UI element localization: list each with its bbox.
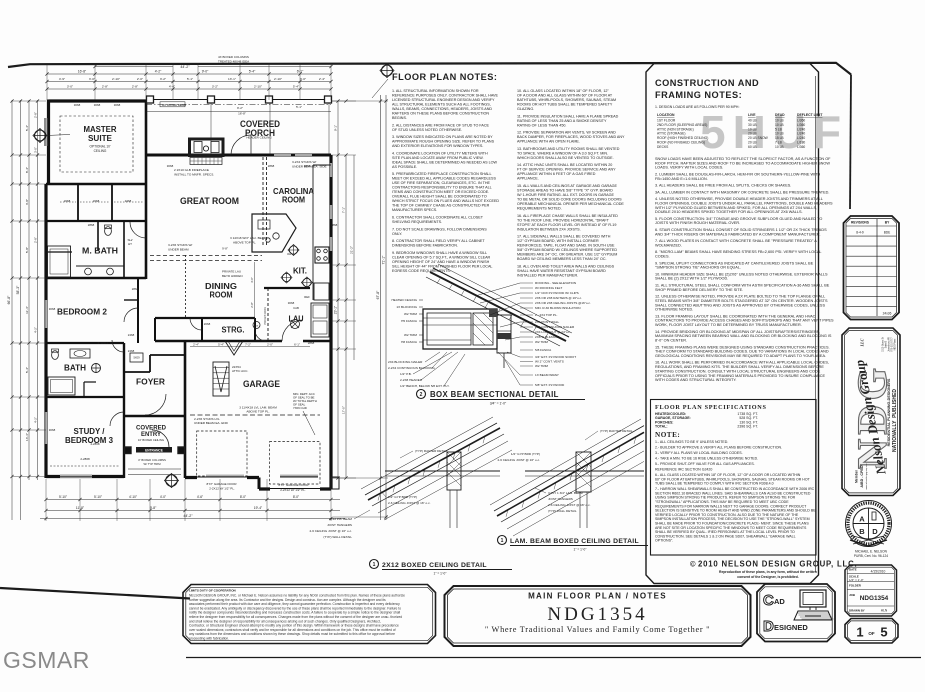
- svg-text:3068: 3068: [94, 103, 101, 107]
- svg-text:2-2868: 2-2868: [80, 457, 90, 461]
- svg-text:4'-2": 4'-2": [33, 327, 37, 333]
- svg-text:SHALL BE (2) 2X12 WITH 1/2" PL: SHALL BE (2) 2X12 WITH 1/2" PLYWOOD.: [655, 277, 728, 281]
- svg-text:9'-0": 9'-0": [202, 70, 209, 74]
- svg-text:ENTRANCE: ENTRANCE: [145, 449, 163, 453]
- svg-text:30 LB: 30 LB: [748, 123, 757, 127]
- svg-text:7'-1": 7'-1": [342, 207, 346, 213]
- svg-text:8'-0": 8'-0": [293, 495, 299, 499]
- svg-text:W/ 1-HOUR FIRE RATING. ALL EXT: W/ 1-HOUR FIRE RATING. ALL EXT. DOORS IN…: [517, 193, 614, 197]
- svg-text:15 LB: 15 LB: [775, 136, 784, 140]
- svg-text:3068: 3068: [74, 103, 81, 107]
- svg-text:1: 1: [373, 562, 376, 568]
- svg-text:OPERABLE MECHANICAL OPENER PER: OPERABLE MECHANICAL OPENER PER MECHANICA…: [517, 202, 624, 206]
- svg-text:GEOLOGICAL CONDITIONS REVISION: GEOLOGICAL CONDITIONS REVISIONS MAY BE R…: [655, 354, 826, 358]
- svg-text:3A. ALL LUMBER IN CONTACT WITH: 3A. ALL LUMBER IN CONTACT WITH MASONRY O…: [655, 190, 829, 194]
- svg-text:BEDROOM 3: BEDROOM 3: [65, 436, 114, 445]
- svg-text:BEGINS.: BEGINS.: [392, 116, 407, 120]
- svg-text:FOLDER: FOLDER: [849, 584, 862, 588]
- svg-text:2-2X4 CONTINUOUS BLOCKING: 2-2X4 CONTINUOUS BLOCKING: [388, 366, 435, 370]
- svg-text:9'-2": 9'-2": [237, 106, 243, 110]
- svg-text:9. BEDROOM WINDOWS SHALL HAVE: 9. BEDROOM WINDOWS SHALL HAVE A WINDOW S…: [392, 251, 487, 255]
- svg-text:BOX BEAM SECTIONAL DETAIL: BOX BEAM SECTIONAL DETAIL: [430, 390, 559, 399]
- svg-text:consent of the Designer, is pr: consent of the Designer, is prohibited.: [737, 575, 799, 579]
- svg-text:BATHTUBS, WHIRLPOOLS, SHOWERS,: BATHTUBS, WHIRLPOOLS, SHOWERS, SAUNAS, S…: [517, 98, 616, 102]
- svg-text:2X6 OR 2X8 CEILING JOISTS @16": 2X6 OR 2X8 CEILING JOISTS @16"o.c.: [535, 301, 591, 305]
- svg-text:13'-1": 13'-1": [228, 77, 236, 81]
- svg-text:STRG.: STRG.: [222, 326, 245, 335]
- svg-text:16'-8": 16'-8": [238, 112, 246, 116]
- svg-text:BOARD W/ CEILING MEMBERS LESS: BOARD W/ CEILING MEMBERS LESS THAN 24" O…: [517, 257, 607, 261]
- svg-text:"SIMPSON STRONG TIE" ANCHORS O: "SIMPSON STRONG TIE" ANCHORS OR EQUAL.: [655, 266, 741, 270]
- svg-text:3 14X18 W/3" LAU. BEAM: 3 14X18 W/3" LAU. BEAM: [230, 236, 267, 240]
- svg-text:3068: 3068: [49, 307, 56, 311]
- svg-text:3468: 3468: [125, 199, 132, 203]
- svg-text:4'-0": 4'-0": [160, 495, 166, 499]
- svg-text:LLC: LLC: [860, 338, 865, 347]
- svg-text:C: C: [763, 592, 774, 609]
- svg-text:DEFLECT LIMIT: DEFLECT LIMIT: [797, 113, 823, 117]
- svg-text:17. ALL SIDEWALL WALLS SHALL B: 17. ALL SIDEWALL WALLS SHALL BE COVERED …: [517, 235, 611, 239]
- svg-text:23'-1": 23'-1": [334, 305, 338, 314]
- svg-text:W/ ROOFING FELT: W/ ROOFING FELT: [535, 286, 562, 290]
- svg-text:(TYP) WALL DETAIL: (TYP) WALL DETAIL: [323, 535, 352, 539]
- svg-text:2-6 CEILING JOIST @ 16" o.c.: 2-6 CEILING JOIST @ 16" o.c.: [388, 501, 431, 505]
- svg-text:2X4 BLOCKING NAILER: 2X4 BLOCKING NAILER: [388, 360, 423, 364]
- svg-text:ATTIC ACC.: ATTIC ACC.: [232, 369, 248, 373]
- svg-text:4'-10": 4'-10": [129, 495, 137, 499]
- svg-text:HT: HT: [128, 242, 132, 246]
- svg-text:ONLY.: ONLY.: [392, 232, 402, 236]
- svg-text:44'-2": 44'-2": [180, 65, 190, 69]
- svg-text:4.- TAKE A MIN. TO BE 16 RISE: 4.- TAKE A MIN. TO BE 16 RISE UNLESS OTH…: [655, 457, 758, 461]
- svg-text:7. DO NOT SCALE DRAWINGS, FOLL: 7. DO NOT SCALE DRAWINGS, FOLLOW DIMENSI…: [392, 227, 487, 231]
- svg-text:MEMBERS ARE 24" OC. OR GREATER: MEMBERS ARE 24" OC. OR GREATER. USE 1/2"…: [517, 253, 617, 257]
- svg-text:HEATED CEILING: HEATED CEILING: [391, 298, 417, 302]
- svg-text:OPTIONAL 10': OPTIONAL 10': [89, 145, 110, 149]
- svg-text:D: D: [872, 527, 878, 536]
- svg-text:REFERENCE IRC SECTION G2420: REFERENCE IRC SECTION G2420: [655, 468, 712, 472]
- svg-text:LOADS. VERIFY WITH LOCAL CODES: LOADS. VERIFY WITH LOCAL CODES.: [655, 166, 723, 170]
- svg-text:5 LB: 5 LB: [775, 127, 783, 131]
- svg-text:2. ALL DISTANCES ARE FROM FACE: 2. ALL DISTANCES ARE FROM FACE OF STUD T…: [392, 123, 490, 127]
- svg-text:5X09: 5X09: [133, 356, 140, 360]
- svg-text:FLOOR PLAN SPECIFICATIONS: FLOOR PLAN SPECIFICATIONS: [655, 404, 767, 411]
- svg-text:60 LB: 60 LB: [748, 145, 757, 149]
- svg-text:CAB: CAB: [293, 306, 299, 310]
- svg-text:TO SPACE. WHERE A WINDOW OF A: TO SPACE. WHERE A WINDOW OF A 3.0 SQ.FT.…: [517, 151, 608, 155]
- svg-text:4'-6": 4'-6": [197, 495, 203, 499]
- svg-text:NDG1354: NDG1354: [860, 595, 889, 602]
- svg-text:NDG1354: NDG1354: [547, 604, 647, 625]
- svg-text:GARAGE: GARAGE: [243, 379, 280, 389]
- svg-text:ITEMS AND CONSTRUCTION MEET OR: ITEMS AND CONSTRUCTION MEET OR EXCEED CO…: [392, 190, 489, 194]
- svg-text:WALLS, BEAMS, CONNECTIONS, HEA: WALLS, BEAMS, CONNECTIONS, HEADERS, JOIS…: [392, 107, 492, 111]
- svg-text:2-2X12 W/ 1/2" PL.: 2-2X12 W/ 1/2" PL.: [209, 487, 235, 491]
- svg-text:5'-8": 5'-8": [25, 247, 29, 253]
- svg-text:3'-0": 3'-0": [250, 277, 254, 283]
- svg-text:3. WINDOW SIZES INDICATED ON P: 3. WINDOW SIZES INDICATED ON PLANS ARE N…: [392, 135, 493, 139]
- svg-text:8-4-9: 8-4-9: [856, 231, 864, 235]
- svg-text:5/8" GYPSUM BOARD W/ CEILINGS: 5/8" GYPSUM BOARD W/ CEILINGS WHERE SUPP…: [517, 248, 617, 252]
- svg-text:10 LB: 10 LB: [775, 123, 784, 127]
- svg-text:6' WALL: 6' WALL: [98, 341, 109, 345]
- svg-text:BEYD HIDDEN: BEYD HIDDEN: [222, 274, 243, 278]
- svg-text:9'-1": 9'-1": [334, 125, 338, 131]
- svg-text:JOIST HANGERS: JOIST HANGERS: [548, 497, 573, 501]
- svg-text:WORK, FLOOR JOIST LAYOUT TO BE: WORK, FLOOR JOIST LAYOUT TO BE DETERMINE…: [655, 323, 802, 327]
- svg-text:OPENING HEIGHT OF 24" AND HAVE: OPENING HEIGHT OF 24" AND HAVE A WINDOW …: [392, 260, 490, 264]
- svg-text:2868: 2868: [308, 341, 315, 345]
- svg-text:TREATED 48X48 IDEA: TREATED 48X48 IDEA: [218, 60, 249, 64]
- svg-text:TO BE METAL OR SOLID CORE DOOR: TO BE METAL OR SOLID CORE DOORS INCLUDIN…: [517, 198, 622, 202]
- svg-text:12. PROVIDE SEPARATION AIR VEN: 12. PROVIDE SEPARATION AIR VENTS, W/ SCR…: [517, 131, 616, 135]
- svg-text:WITH CODES AND STRUCTURAL INTE: WITH CODES AND STRUCTURAL INTEGRITY.: [655, 378, 736, 382]
- svg-text:H5 FASCIA: H5 FASCIA: [401, 319, 418, 323]
- svg-text:CODES.: CODES.: [655, 255, 670, 259]
- svg-text:3-2X6 STUDS W/: 3-2X6 STUDS W/: [168, 243, 192, 247]
- svg-text:ABOVE TOP PL.: ABOVE TOP PL.: [246, 410, 269, 414]
- svg-text:DOUBLE 2X10 HEADERS SPIKED TOG: DOUBLE 2X10 HEADERS SPIKED TOGETHER FOR …: [655, 210, 803, 214]
- svg-text:2-6 CEILING JOIST @ 16" o.c.: 2-6 CEILING JOIST @ 16" o.c.: [548, 503, 591, 507]
- svg-text:3'-0": 3'-0": [89, 77, 95, 81]
- svg-text:2'-4": 2'-4": [319, 77, 325, 81]
- svg-text:16. ALL FIREPLACE CHASE WALLS: 16. ALL FIREPLACE CHASE WALLS SHALL BE I…: [517, 214, 618, 218]
- svg-text:WHICH STRICT FOCUS ON FLUES AN: WHICH STRICT FOCUS ON FLUES AND WALLS NO…: [392, 199, 499, 203]
- svg-text:WHICH DOORS SHALL ALSO BE VENT: WHICH DOORS SHALL ALSO BE VENTED TO OUTS…: [517, 156, 614, 160]
- svg-text:Reproduction of these plans, i: Reproduction of these plans, in any form…: [719, 570, 817, 574]
- svg-text:13. BATHROOMS AND UTILITY ROOM: 13. BATHROOMS AND UTILITY ROOMS SHALL BE…: [517, 147, 620, 151]
- svg-text:2'-10": 2'-10": [254, 85, 262, 89]
- svg-text:17'-0": 17'-0": [342, 406, 346, 414]
- svg-text:INSTALL TO MNFR. SPECS.: INSTALL TO MNFR. SPECS.: [174, 173, 214, 177]
- svg-text:L/360: L/360: [797, 119, 805, 123]
- svg-text:2X4 CONTINUOUS NAILER: 2X4 CONTINUOUS NAILER: [535, 325, 575, 329]
- svg-text:1: 1: [501, 538, 504, 544]
- svg-text:8'X7' GARAGE DOOR: 8'X7' GARAGE DOOR: [279, 483, 310, 487]
- svg-text:SHALL HAVE WATER RESISTANT GYP: SHALL HAVE WATER RESISTANT GYPSUM BOARD: [517, 269, 606, 273]
- svg-text:W2 TRIM: W2 TRIM: [535, 364, 548, 368]
- svg-text:BDE: BDE: [884, 231, 891, 235]
- svg-text:1. DESIGN LOADS ARE AS FOLLOWS: 1. DESIGN LOADS ARE AS FOLLOWS PER 90 MP…: [655, 105, 739, 109]
- svg-text:W2 TRIM: W2 TRIM: [404, 312, 417, 316]
- svg-text:1ST FLOOR: 1ST FLOOR: [657, 119, 676, 123]
- svg-text:870-931-5777: 870-931-5777: [892, 337, 894, 352]
- svg-text:5'-10": 5'-10": [59, 495, 67, 499]
- svg-text:Member: Member: [855, 469, 859, 483]
- svg-text:20 LB SNOW: 20 LB SNOW: [748, 136, 769, 140]
- svg-text:APPLIANCE WITHIN 6 FEET OF A G: APPLIANCE WITHIN 6 FEET OF A GAS FIRED: [517, 172, 596, 176]
- svg-text:proceeding with fabrication.: proceeding with fabrication.: [189, 637, 229, 641]
- svg-text:4/15/2010: 4/15/2010: [871, 570, 886, 574]
- svg-text:5. PREFABRICATED FIREPLACE CON: 5. PREFABRICATED FIREPLACE CONSTRUCTION …: [392, 172, 492, 176]
- svg-text:2468: 2468: [128, 349, 135, 353]
- svg-text:RESIDENTIAL PLANNING-DESIGNERS: RESIDENTIAL PLANNING-DESIGNERS: [887, 378, 891, 446]
- svg-text:7 LB: 7 LB: [775, 141, 783, 145]
- svg-text:1: 1: [856, 625, 863, 640]
- svg-text:OPTIONS".: OPTIONS".: [655, 539, 673, 543]
- svg-text:10 LB: 10 LB: [775, 132, 784, 136]
- svg-text:2'-8": 2'-8": [250, 302, 254, 308]
- svg-text:8'-0" ON CENTER.: 8'-0" ON CENTER.: [655, 339, 687, 343]
- svg-text:3.- VERIFY ALL PLANS W/ LOCAL: 3.- VERIFY ALL PLANS W/ LOCAL BUILDING C…: [655, 451, 743, 455]
- svg-text:WS: WS: [255, 326, 259, 328]
- svg-text:1" = 1'-0": 1" = 1'-0": [574, 548, 587, 552]
- svg-text:REQUIREMENTS NOTED.: REQUIREMENTS NOTED.: [517, 207, 562, 211]
- svg-text:NOTE:: NOTE:: [655, 431, 680, 439]
- svg-text:BY: BY: [885, 221, 890, 225]
- svg-text:L/240: L/240: [797, 132, 805, 136]
- svg-text:2'-0": 2'-0": [267, 342, 273, 346]
- svg-text:8'X7' GARAGE DOOR: 8'X7' GARAGE DOOR: [207, 482, 238, 486]
- svg-text:ROOF (NO FINISHED CEILING): ROOF (NO FINISHED CEILING): [657, 141, 705, 145]
- svg-text:APPROXIMATE ROUGH OPENING SIZE: APPROXIMATE ROUGH OPENING SIZE. REFER TO…: [392, 140, 495, 144]
- svg-text:2868: 2868: [304, 164, 311, 168]
- svg-text:HEADER CEILING: HEADER CEILING: [246, 136, 272, 140]
- svg-text:8. CONTRACTOR SHALL FIELD VERI: 8. CONTRACTOR SHALL FIELD VERIFY ALL CAB…: [392, 239, 485, 243]
- svg-text:DEAD: DEAD: [775, 113, 785, 117]
- svg-text:2'-8": 2'-8": [132, 85, 138, 89]
- svg-text:1/2" GYPSUM BOARD, WITH INSTAL: 1/2" GYPSUM BOARD, WITH INSTALL CORNER: [517, 239, 599, 243]
- svg-text:5/8 FASCIA: 5/8 FASCIA: [535, 348, 552, 352]
- svg-text:W/ TYP TRIM: W/ TYP TRIM: [143, 462, 161, 466]
- svg-text:ABOVE TOP PL.: ABOVE TOP PL.: [233, 241, 256, 245]
- svg-text:CEILING: CEILING: [94, 149, 107, 153]
- svg-text:2868: 2868: [88, 223, 95, 227]
- svg-text:CLEAR OPENING OF 5.7 SQ.FT., A: CLEAR OPENING OF 5.7 SQ.FT., A WINDOW SI…: [392, 255, 491, 259]
- svg-text:WOLMANIZED.: WOLMANIZED.: [655, 243, 682, 247]
- svg-text:LAU: LAU: [289, 315, 304, 324]
- svg-text:2868: 2868: [132, 287, 139, 291]
- svg-text:4'-2": 4'-2": [155, 70, 162, 74]
- svg-text:TUBS SHALL BE TEMPERED TO COMP: TUBS SHALL BE TEMPERED TO COMPLY WITH IR…: [655, 482, 774, 486]
- svg-text:3068: 3068: [49, 428, 56, 432]
- svg-text:2-2X8 HEADER: 2-2X8 HEADER: [400, 378, 423, 382]
- svg-text:DRAWN BY: DRAWN BY: [849, 609, 865, 613]
- svg-text:1/2" P.B.: 1/2" P.B.: [400, 372, 412, 376]
- svg-text:RATING OF LESS THAN 450.: RATING OF LESS THAN 450.: [517, 123, 566, 127]
- svg-text:APPLIANCE.: APPLIANCE.: [517, 177, 539, 181]
- svg-text:A: A: [859, 515, 865, 524]
- svg-text:NATIONALLY PUBLISHED: NATIONALLY PUBLISHED: [892, 389, 898, 452]
- svg-text:1/4" = 1'-0": 1/4" = 1'-0": [849, 578, 864, 582]
- svg-text:2-2X12 W/ 1/2" PL.: 2-2X12 W/ 1/2" PL.: [280, 488, 306, 492]
- svg-text:HLN: HLN: [881, 609, 888, 613]
- svg-text:PRIVATE LAU: PRIVATE LAU: [222, 270, 241, 274]
- svg-text:3'-2": 3'-2": [160, 77, 166, 81]
- svg-text:67'-8": 67'-8": [376, 290, 380, 299]
- svg-text:L/360: L/360: [797, 145, 805, 149]
- svg-text:©: ©: [690, 560, 696, 569]
- svg-text:21'-2": 21'-2": [350, 246, 354, 254]
- svg-text:2'-10": 2'-10": [274, 77, 282, 81]
- svg-text:20 LB: 20 LB: [748, 132, 757, 136]
- svg-text:2 2X10 GLB FIREPLACE: 2 2X10 GLB FIREPLACE: [174, 168, 209, 172]
- svg-text:B: B: [859, 527, 865, 536]
- svg-text:OVERALL FLUE HEIGHT SHALL BE C: OVERALL FLUE HEIGHT SHALL BE COORDINATED…: [392, 195, 487, 199]
- svg-text:AS POSSIBLE.: AS POSSIBLE.: [392, 165, 417, 169]
- svg-text:2.- BUILDER TO APPROVE & VERIF: 2.- BUILDER TO APPROVE & VERIFY ALL PLAN…: [655, 446, 782, 450]
- svg-text:MASTER: MASTER: [84, 125, 117, 134]
- svg-text:ROOM: ROOM: [282, 195, 305, 205]
- svg-text:OF: OF: [868, 631, 875, 636]
- svg-text:GREAT ROOM: GREAT ROOM: [180, 196, 239, 206]
- svg-text:2-6 CEILING JOIST @ 16" o.c.: 2-6 CEILING JOIST @ 16" o.c.: [497, 458, 540, 462]
- svg-text:MAIN FLOOR PLAN / NOTES: MAIN FLOOR PLAN / NOTES: [528, 592, 667, 601]
- svg-text:11. PROVIDE INSULATION SHALL H: 11. PROVIDE INSULATION SHALL HAVE A FLAM…: [517, 114, 619, 118]
- svg-text:1. ALL STRUCTURAL INFORMATION: 1. ALL STRUCTURAL INFORMATION SHOWN FOR: [392, 89, 479, 93]
- svg-text:www.nelsondesigngroup.com: www.nelsondesigngroup.com: [866, 463, 868, 489]
- svg-text:2X12 BOXED CEILING DETAIL: 2X12 BOXED CEILING DETAIL: [382, 562, 487, 569]
- svg-text:OH.: OH.: [287, 252, 292, 256]
- svg-text:1/2" CDX PLYWOOD W/ CLIPS: 1/2" CDX PLYWOOD W/ CLIPS: [535, 291, 579, 295]
- svg-text:2396 SQ. FT.: 2396 SQ. FT.: [737, 425, 758, 429]
- svg-text:5'-4": 5'-4": [293, 85, 299, 89]
- svg-text:3/4" EXT. PLYWOOD SOFFIT: 3/4" EXT. PLYWOOD SOFFIT: [535, 355, 576, 359]
- svg-text:5: 5: [880, 625, 887, 640]
- svg-text:POCKET DOOR: POCKET DOOR: [264, 307, 267, 325]
- svg-text:OTHERWISE NOTED.: OTHERWISE NOTED.: [655, 308, 693, 312]
- svg-text:5'-4": 5'-4": [218, 342, 224, 346]
- svg-text:5'-4": 5'-4": [25, 125, 29, 131]
- svg-text:RAFTERS ON THESE PLANS BEFORE: RAFTERS ON THESE PLANS BEFORE CONSTRUCTI…: [392, 112, 489, 116]
- svg-text:D: D: [763, 618, 774, 635]
- svg-text:2'-10": 2'-10": [112, 77, 120, 81]
- svg-text:10 LB: 10 LB: [775, 119, 784, 123]
- svg-text:24x36: 24x36: [883, 312, 892, 316]
- svg-text:1/2" GYP BRD (TYP): 1/2" GYP BRD (TYP): [511, 452, 540, 456]
- svg-text:ALL STRUCTURAL ELEMENTS SUCH A: ALL STRUCTURAL ELEMENTS SUCH AS ALL FOOT…: [392, 103, 491, 107]
- svg-text:3'-8": 3'-8": [25, 199, 29, 205]
- svg-text:18. ALL OVEN AND TOILET AREA W: 18. ALL OVEN AND TOILET AREA WALLS AND C…: [517, 264, 615, 268]
- svg-text:MEET OR EXCEED ALL APPLICABLE: MEET OR EXCEED ALL APPLICABLE CODES REGA…: [392, 177, 496, 181]
- svg-text:UNDER BEAM EA. END: UNDER BEAM EA. END: [194, 421, 229, 425]
- svg-text:2068: 2068: [204, 322, 211, 326]
- svg-text:ROOM: ROOM: [210, 290, 233, 300]
- svg-text:REVISIONS: REVISIONS: [851, 221, 870, 225]
- svg-text:JOISTS WITH FINISH ROUGH MATER: JOISTS WITH FINISH ROUGH MATERIAL OVER.: [655, 221, 740, 225]
- svg-text:DIMENSIONS BEFORE FABRICATION.: DIMENSIONS BEFORE FABRICATION.: [392, 244, 458, 248]
- svg-text:RATING OF LESS THAN 25 AND A S: RATING OF LESS THAN 25 AND A SMOKE DENSI…: [517, 119, 607, 123]
- svg-text:SHELVING REQUIREMENTS.: SHELVING REQUIREMENTS.: [392, 220, 442, 224]
- svg-text:MICHAEL E. NELSON: MICHAEL E. NELSON: [855, 550, 888, 554]
- svg-text:STOPS" AT EACH FLOOR LEVEL OR: STOPS" AT EACH FLOOR LEVEL OR INSTEAD 8"…: [517, 223, 616, 227]
- svg-text:M. BATH: M. BATH: [82, 246, 118, 256]
- svg-text:2ND FLOOR (SLEEPING AREAS): 2ND FLOOR (SLEEPING AREAS): [657, 123, 707, 127]
- svg-text:2 - 2X4 TOP PL.: 2 - 2X4 TOP PL.: [535, 313, 558, 317]
- svg-text:3068: 3068: [167, 164, 174, 168]
- svg-text:2'-4": 2'-4": [193, 342, 199, 346]
- svg-text:JOB: JOB: [849, 593, 855, 597]
- svg-text:SITE PLAN AND LOCATE AWAY FROM: SITE PLAN AND LOCATE AWAY FROM PUBLIC VI…: [392, 156, 484, 160]
- svg-text:ATTIC (STORAGE): ATTIC (STORAGE): [657, 132, 685, 136]
- svg-text:2068: 2068: [93, 199, 100, 203]
- svg-text:2X4 PONY WALL: 2X4 PONY WALL: [535, 320, 560, 324]
- svg-text:19'-4": 19'-4": [254, 506, 263, 510]
- svg-text:2868: 2868: [331, 223, 338, 227]
- svg-text:7X09 CHD: 7X09 CHD: [293, 406, 307, 410]
- svg-text:STUDY /: STUDY /: [74, 427, 106, 436]
- svg-text:2010 NELSON DESIGN GROUP, LLC.: 2010 NELSON DESIGN GROUP, LLC.: [698, 560, 857, 569]
- svg-text:2'-8": 2'-8": [102, 85, 108, 89]
- svg-text:2868: 2868: [268, 164, 275, 168]
- svg-text:8'-4": 8'-4": [25, 167, 29, 173]
- svg-text:10 LB: 10 LB: [775, 145, 784, 149]
- svg-text:JOIST HANGERS: JOIST HANGERS: [327, 523, 352, 527]
- svg-text:TO THE ROOF LINE. PROVIDE HORI: TO THE ROOF LINE. PROVIDE HORIZONTAL "DR…: [517, 218, 610, 222]
- svg-text:2X12 P.B. BEAM: 2X12 P.B. BEAM: [329, 517, 353, 521]
- svg-text:2068: 2068: [64, 199, 71, 203]
- svg-text:2'-8": 2'-8": [33, 112, 37, 118]
- svg-text:BEDROOM 2: BEDROOM 2: [57, 307, 107, 317]
- svg-text:W2 TRIM: W2 TRIM: [404, 333, 417, 337]
- svg-text:8. "MICRO-LAM" BEAMS SHALL HAV: 8. "MICRO-LAM" BEAMS SHALL HAVE BENDING …: [655, 250, 821, 254]
- svg-text:COVERED: COVERED: [136, 426, 167, 432]
- svg-text:6. CONTRACTOR SHALL COORDINATE: 6. CONTRACTOR SHALL COORDINATE ALL CLOSE…: [392, 216, 484, 220]
- svg-text:SHOP PRIMED BEFORE DELIVERY TO: SHOP PRIMED BEFORE DELIVERY TO THE SITE.: [655, 288, 743, 292]
- svg-text:4'-2": 4'-2": [33, 417, 37, 423]
- svg-text:NDG Plans: NDG Plans: [895, 338, 897, 350]
- svg-text:2X4 LOOKOUT @ 24"o.c.: 2X4 LOOKOUT @ 24"o.c.: [535, 330, 571, 334]
- svg-text:REFERENCE PURPOSES ONLY. CONTR: REFERENCE PURPOSES ONLY. CONTRACTOR SHAL…: [392, 94, 498, 98]
- svg-text:W/ 2" CONT. VENTS: W/ 2" CONT. VENTS: [535, 360, 564, 364]
- svg-text:4X BOXED COLUMNS: 4X BOXED COLUMNS: [218, 55, 249, 59]
- svg-text:5'-4": 5'-4": [25, 367, 29, 373]
- svg-text:L/240: L/240: [797, 136, 805, 140]
- svg-text:Jonesboro AR: Jonesboro AR: [888, 337, 891, 352]
- svg-text:11'-4": 11'-4": [25, 306, 29, 314]
- svg-text:3'-0": 3'-0": [33, 147, 37, 153]
- svg-text:" Where Traditional Values and: " Where Traditional Values and Family Co…: [485, 625, 710, 634]
- svg-text:2-2868: 2-2868: [90, 442, 99, 446]
- svg-text:FRAMING NOTES:: FRAMING NOTES:: [655, 90, 742, 100]
- svg-text:GSMAR: GSMAR: [3, 647, 90, 673]
- svg-text:1/2" BENCH, BELOW 5/8 EXT. PLY: 1/2" BENCH, BELOW 5/8 EXT. PLY.: [400, 384, 450, 388]
- svg-text:3'-0": 3'-0": [67, 85, 73, 89]
- svg-text:2: 2: [420, 392, 423, 398]
- svg-text:3068: 3068: [288, 301, 295, 305]
- svg-text:4. COORDINATE LOCATION OF UTIL: 4. COORDINATE LOCATION OF UTILITY METERS…: [392, 151, 488, 155]
- svg-text:1519 Stone St: 1519 Stone St: [882, 337, 885, 352]
- svg-text:5'-1": 5'-1": [296, 105, 302, 109]
- svg-text:GLAZING.: GLAZING.: [517, 107, 534, 111]
- svg-text:CONSTRUCTION. SEE DETAILS 1 &: CONSTRUCTION. SEE DETAILS 1 & 2 ON PAGE …: [655, 534, 796, 538]
- svg-text:L/180: L/180: [797, 141, 805, 145]
- svg-text:71'-1": 71'-1": [382, 255, 386, 264]
- svg-text:ESIGNED: ESIGNED: [774, 623, 808, 632]
- svg-text:Suite B: Suite B: [885, 340, 888, 348]
- svg-text:58'-3": 58'-3": [16, 285, 20, 294]
- svg-text:W2 TRIM: W2 TRIM: [535, 340, 548, 344]
- svg-text:2468: 2468: [128, 333, 135, 337]
- svg-text:AD: AD: [774, 597, 785, 606]
- svg-text:MANUFACTURER SPECS.: MANUFACTURER SPECS.: [392, 208, 437, 212]
- svg-text:1/2" GYP BRD (TYP): 1/2" GYP BRD (TYP): [388, 495, 417, 499]
- svg-text:BACK DAMPER, FOR FIREPLACES, W: BACK DAMPER, FOR FIREPLACES, WOOD STOVES…: [517, 135, 625, 139]
- svg-text:REINFORCED, TAPE, FLOAT AND SA: REINFORCED, TAPE, FLOAT AND SAND. IN SOU…: [517, 244, 615, 248]
- svg-text:FT OF SERVICE OPENING. PROVIDE: FT OF SERVICE OPENING. PROVIDE SERVICE A…: [517, 168, 616, 172]
- svg-text:3'-2": 3'-2": [212, 85, 218, 89]
- svg-text:INSTALLED PER MANUFACTURER.: INSTALLED PER MANUFACTURER.: [517, 273, 578, 277]
- svg-text:ROOFING - SEE ELEVATION: ROOFING - SEE ELEVATION: [535, 281, 576, 285]
- svg-text:2'-0": 2'-0": [137, 77, 143, 81]
- svg-text:INSULATION BETWEEN 2X4 JOISTS.: INSULATION BETWEEN 2X4 JOISTS.: [517, 227, 581, 231]
- svg-text:CONTRACTORS RESPONSIBILITY TO: CONTRACTORS RESPONSIBILITY TO ENSURE THA…: [392, 186, 492, 190]
- svg-text:ATTIC (NON STORAGE): ATTIC (NON STORAGE): [657, 127, 694, 131]
- svg-text:OF STUD UNLESS NOTED OTHERWISE: OF STUD UNLESS NOTED OTHERWISE.: [392, 128, 462, 132]
- svg-text:6'-1": 6'-1": [294, 342, 300, 346]
- svg-text:1X BLOCKING: 1X BLOCKING: [396, 305, 417, 309]
- svg-text:FOYER: FOYER: [136, 377, 165, 387]
